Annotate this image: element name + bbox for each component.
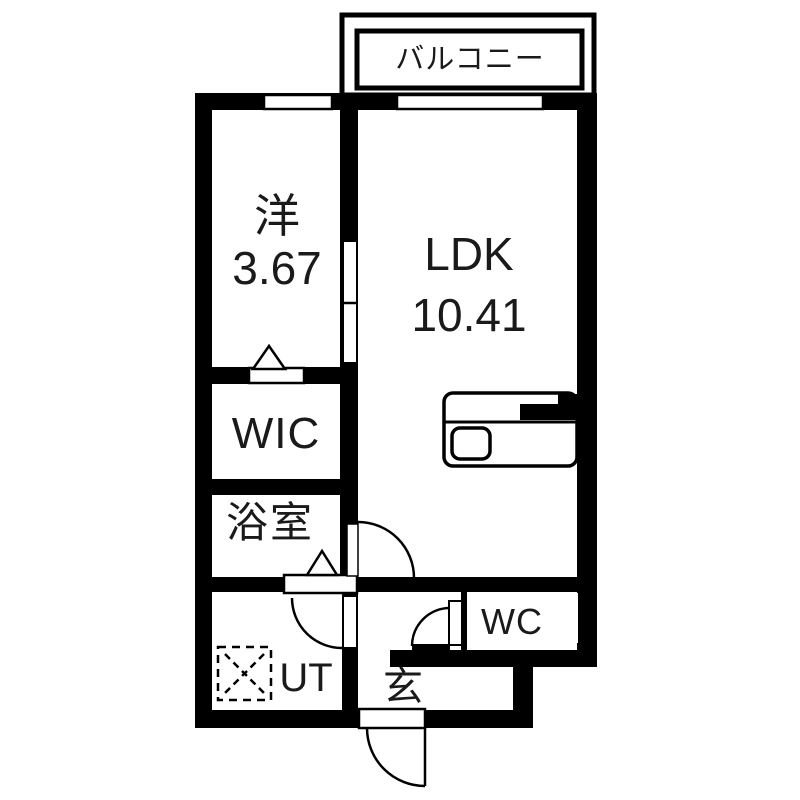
bathroom-door-triangle-icon (307, 551, 337, 575)
wic-door-triangle-icon (253, 346, 285, 369)
ldk-door-arc (358, 522, 414, 578)
western-room-label: 洋 (254, 193, 300, 239)
wc-door-arc (412, 608, 450, 646)
balcony-label: バルコニー (395, 46, 544, 75)
wall-step-right (513, 650, 533, 728)
ldk-door-leaf (347, 524, 358, 576)
entrance-door-arc (367, 728, 425, 786)
ldk-size: 10.41 (411, 292, 526, 338)
western-room-size: 3.67 (232, 245, 322, 291)
wic-label: WIC (232, 412, 321, 456)
washing-machine-area (218, 647, 271, 700)
utility-label: UT (279, 658, 332, 698)
ldk-label: LDK (424, 231, 513, 277)
kitchen-sink (452, 428, 490, 459)
floorplan: バルコニー 洋 3.67 LDK 10.41 WIC 浴室 WC UT 玄 (0, 0, 800, 800)
window-wc-slot (572, 593, 578, 643)
washer-cross-icon (225, 654, 264, 693)
window-western-room (264, 95, 332, 109)
kitchen-counter (444, 393, 577, 466)
ut-door-arc (292, 598, 342, 648)
bathroom-label: 浴室 (226, 502, 314, 544)
entrance-label: 玄 (383, 667, 423, 707)
wall-left (195, 93, 212, 728)
window-ldk (397, 95, 543, 109)
wc-label: WC (481, 604, 543, 640)
wc-door-threshold (412, 644, 450, 650)
wall-hall-top (212, 577, 597, 592)
bathroom-door-opening (284, 575, 357, 593)
ut-door-opening (343, 596, 357, 648)
wall-wic-bath (212, 479, 340, 495)
wc-door-leaf (449, 601, 462, 645)
entrance-door-opening (359, 709, 425, 728)
